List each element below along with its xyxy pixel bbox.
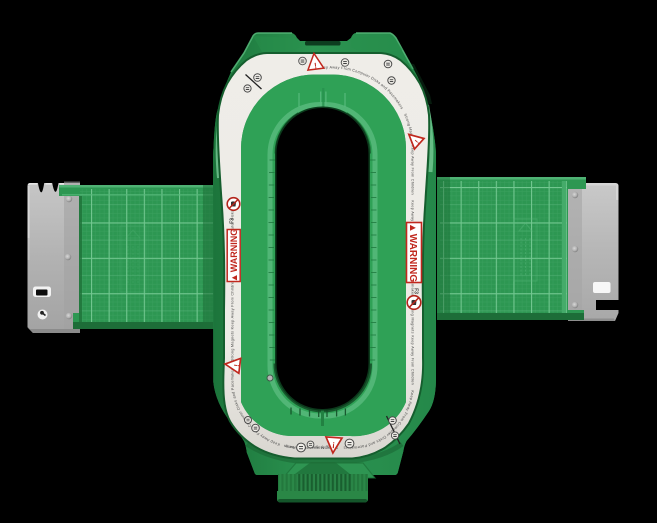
- svg-text:F3: F3: [230, 218, 236, 224]
- svg-text:▲WARNING: ▲WARNING: [229, 229, 239, 282]
- svg-text:▲WARNING: ▲WARNING: [407, 223, 418, 282]
- svg-text:F3: F3: [413, 288, 419, 294]
